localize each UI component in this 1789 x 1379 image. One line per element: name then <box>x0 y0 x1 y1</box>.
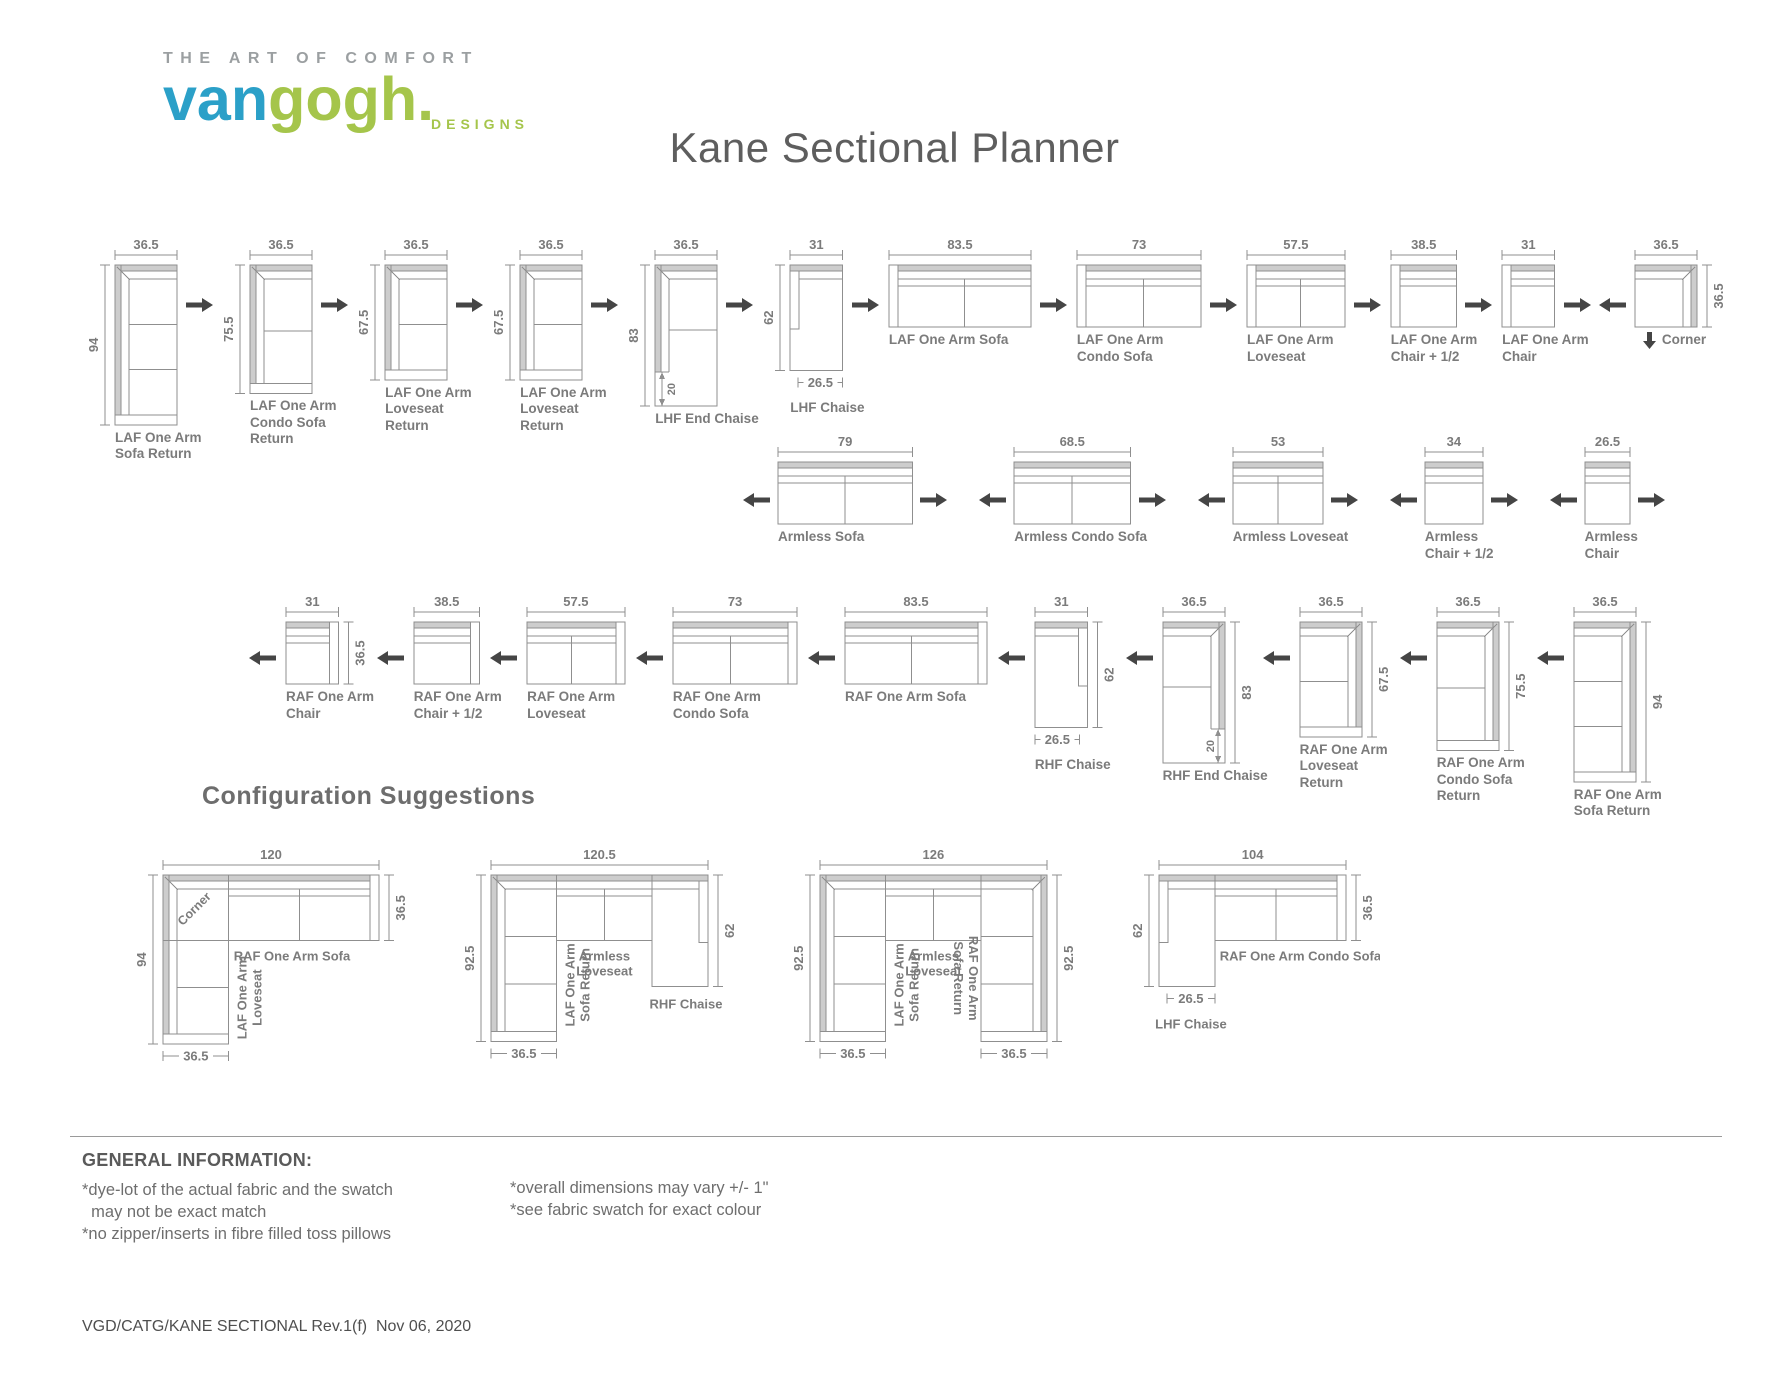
svg-text:83.5: 83.5 <box>903 594 928 609</box>
piece-raf-one-arm-sofa-return: 36.594RAF One ArmSofa Return <box>1571 592 1666 790</box>
piece-drawing-rhf-chaise: 316226.5 <box>1032 592 1118 755</box>
svg-text:73: 73 <box>728 594 742 609</box>
svg-text:Loveseat: Loveseat <box>576 964 633 979</box>
configuration-suggestions-heading: Configuration Suggestions <box>202 782 535 811</box>
svg-text:53: 53 <box>1271 434 1285 449</box>
flow-arrow-left <box>1598 297 1626 318</box>
svg-text:36.5: 36.5 <box>1360 895 1375 920</box>
flow-arrow-right <box>1210 297 1238 318</box>
flow-arrow-right <box>1040 297 1068 318</box>
svg-text:RAF One Arm Condo Sofa: RAF One Arm Condo Sofa <box>1219 949 1379 964</box>
piece-raf-one-arm-condo-sofa-return: 36.575.5RAF One ArmCondo SofaReturn <box>1434 592 1529 758</box>
piece-label-raf-one-arm-condo-sofa: RAF One ArmCondo Sofa <box>673 689 761 722</box>
flow-arrow-left <box>1125 650 1153 671</box>
piece-drawing-raf-one-arm-loveseat-return: 36.567.5 <box>1297 592 1392 740</box>
piece-drawing-raf-one-arm-sofa-return: 36.594 <box>1571 592 1666 785</box>
piece-armless-chair: 26.5ArmlessChair <box>1582 432 1633 532</box>
flow-arrow-left <box>248 650 276 671</box>
logo-brand-van: van <box>163 65 268 133</box>
piece-drawing-laf-one-arm-loveseat-return-2: 36.567.5 <box>490 235 585 383</box>
svg-text:67.5: 67.5 <box>356 310 371 335</box>
general-information-heading: GENERAL INFORMATION: <box>82 1150 312 1171</box>
svg-text:62: 62 <box>1102 667 1117 681</box>
svg-text:31: 31 <box>1054 594 1068 609</box>
row-armless-pieces: 79Armless Sofa68.5Armless Condo Sofa53Ar… <box>742 432 1666 532</box>
svg-text:94: 94 <box>86 337 101 352</box>
svg-text:57.5: 57.5 <box>1283 237 1308 252</box>
svg-text:36.5: 36.5 <box>1592 594 1617 609</box>
flow-arrow-right <box>1354 297 1382 318</box>
divider-line <box>70 1136 1722 1137</box>
svg-text:31: 31 <box>305 594 319 609</box>
svg-text:26.5: 26.5 <box>1594 434 1619 449</box>
flow-arrow-right <box>1139 492 1167 513</box>
flow-arrow-left <box>742 492 770 513</box>
vangogh-logo: THE ART OF COMFORT vangogh. DESIGNS <box>163 50 529 132</box>
config-return-loveseat-chaise-drawing: LAF One ArmSofa ReturnArmlessLoveseatRHF… <box>461 845 742 1112</box>
piece-raf-one-arm-sofa: 83.5RAF One Arm Sofa <box>842 592 990 692</box>
piece-armless-condo-sofa: 68.5Armless Condo Sofa <box>1011 432 1133 532</box>
flow-arrow-left <box>1389 492 1417 513</box>
svg-text:92.5: 92.5 <box>791 946 806 971</box>
flow-arrow-left <box>1262 650 1290 671</box>
piece-drawing-laf-one-arm-sofa: 83.5 <box>886 235 1034 330</box>
svg-text:Loveseat: Loveseat <box>250 969 265 1026</box>
svg-text:36.5: 36.5 <box>1181 594 1206 609</box>
config-chaise-condo-drawing: RAF One Arm Condo SofaLHF Chaise1046236.… <box>1129 845 1380 1053</box>
svg-text:92.5: 92.5 <box>1061 946 1076 971</box>
svg-text:36.5: 36.5 <box>1653 237 1678 252</box>
piece-rhf-chaise: 316226.5RHF Chaise <box>1032 592 1118 760</box>
piece-drawing-corner: 36.536.5 <box>1632 235 1727 330</box>
svg-text:36.5: 36.5 <box>674 237 699 252</box>
svg-text:34: 34 <box>1446 434 1461 449</box>
piece-corner: 36.536.5Corner <box>1632 235 1727 335</box>
piece-armless-sofa: 79Armless Sofa <box>775 432 915 532</box>
config-u-shape-drawing: LAF One ArmSofa ReturnArmlessLoveseatRAF… <box>790 845 1081 1112</box>
piece-raf-one-arm-chair-half: 38.5RAF One ArmChair + 1/2 <box>411 592 482 692</box>
svg-text:36.5: 36.5 <box>1711 283 1726 308</box>
svg-text:20: 20 <box>1205 740 1217 752</box>
flow-arrow-left <box>1197 492 1225 513</box>
piece-label-rhf-chaise: RHF Chaise <box>1035 757 1111 773</box>
piece-drawing-laf-one-arm-sofa-return: 36.594 <box>85 235 180 428</box>
svg-text:RAF One Arm Sofa: RAF One Arm Sofa <box>234 949 351 964</box>
piece-drawing-armless-chair-half: 34 <box>1422 432 1486 527</box>
svg-text:LAF One Arm: LAF One Arm <box>235 956 250 1039</box>
flow-arrow-left <box>635 650 663 671</box>
piece-raf-one-arm-condo-sofa: 73RAF One ArmCondo Sofa <box>670 592 800 692</box>
general-information-section: GENERAL INFORMATION: *dye-lot of the act… <box>82 1150 312 1171</box>
svg-text:36.5: 36.5 <box>1001 1046 1026 1061</box>
piece-drawing-laf-one-arm-loveseat: 57.5 <box>1244 235 1348 330</box>
info-note: *overall dimensions may vary +/- 1" <box>510 1178 930 1200</box>
piece-laf-one-arm-condo-sofa-return: 36.575.5LAF One ArmCondo SofaReturn <box>220 235 315 401</box>
piece-label-laf-one-arm-loveseat: LAF One ArmLoveseat <box>1247 332 1334 365</box>
flow-arrow-left <box>1399 650 1427 671</box>
piece-label-laf-one-arm-chair: LAF One ArmChair <box>1502 332 1589 365</box>
down-arrow-icon <box>1643 332 1656 353</box>
configuration-suggestions: CornerRAF One Arm SofaLAF One ArmLovesea… <box>133 845 1380 1119</box>
svg-text:73: 73 <box>1132 237 1146 252</box>
kane-sectional-planner-page: THE ART OF COMFORT vangogh. DESIGNS Kane… <box>0 0 1789 1379</box>
svg-text:83: 83 <box>1239 685 1254 699</box>
svg-text:126: 126 <box>922 847 944 862</box>
piece-laf-one-arm-loveseat-return-2: 36.567.5LAF One ArmLoveseatReturn <box>490 235 585 388</box>
piece-laf-one-arm-loveseat-return: 36.567.5LAF One ArmLoveseatReturn <box>355 235 450 388</box>
flow-arrow-right <box>726 297 754 318</box>
piece-drawing-lhf-chaise: 316226.5 <box>760 235 846 398</box>
svg-text:104: 104 <box>1241 847 1263 862</box>
svg-text:26.5: 26.5 <box>808 375 833 390</box>
svg-text:94: 94 <box>134 952 149 967</box>
piece-drawing-laf-one-arm-chair-half: 38.5 <box>1388 235 1459 330</box>
svg-text:31: 31 <box>1521 237 1535 252</box>
svg-text:LHF Chaise: LHF Chaise <box>1155 1017 1227 1032</box>
piece-label-laf-one-arm-condo-sofa: LAF One ArmCondo Sofa <box>1077 332 1164 365</box>
piece-drawing-armless-sofa: 79 <box>775 432 915 527</box>
piece-label-laf-one-arm-loveseat-return: LAF One ArmLoveseatReturn <box>385 385 472 434</box>
svg-text:36.5: 36.5 <box>393 895 408 920</box>
piece-drawing-laf-one-arm-loveseat-return: 36.567.5 <box>355 235 450 383</box>
piece-drawing-laf-one-arm-condo-sofa: 73 <box>1074 235 1204 330</box>
piece-drawing-raf-one-arm-condo-sofa: 73 <box>670 592 800 687</box>
flow-arrow-right <box>920 492 948 513</box>
general-information-notes-left: *dye-lot of the actual fabric and the sw… <box>82 1180 512 1246</box>
svg-text:20: 20 <box>666 383 678 395</box>
svg-text:36.5: 36.5 <box>1455 594 1480 609</box>
piece-label-raf-one-arm-condo-sofa-return: RAF One ArmCondo SofaReturn <box>1437 755 1525 804</box>
piece-laf-one-arm-chair: 31LAF One ArmChair <box>1499 235 1558 335</box>
svg-text:Sofa Return: Sofa Return <box>951 941 966 1015</box>
flow-arrow-left <box>978 492 1006 513</box>
config-u-shape: LAF One ArmSofa ReturnArmlessLoveseatRAF… <box>790 845 1081 1117</box>
svg-text:94: 94 <box>1650 694 1665 709</box>
piece-drawing-raf-one-arm-chair-half: 38.5 <box>411 592 482 687</box>
flow-arrow-left <box>489 650 517 671</box>
piece-laf-one-arm-sofa: 83.5LAF One Arm Sofa <box>886 235 1034 335</box>
piece-laf-one-arm-chair-half: 38.5LAF One ArmChair + 1/2 <box>1388 235 1459 335</box>
piece-drawing-raf-one-arm-chair: 3136.5 <box>283 592 369 687</box>
config-return-loveseat-chaise: LAF One ArmSofa ReturnArmlessLoveseatRHF… <box>461 845 742 1117</box>
svg-text:75.5: 75.5 <box>221 317 236 342</box>
config-corner-sofa-loveseat-drawing: CornerRAF One Arm SofaLAF One ArmLovesea… <box>133 845 413 1114</box>
info-note: *dye-lot of the actual fabric and the sw… <box>82 1180 512 1202</box>
svg-text:68.5: 68.5 <box>1060 434 1085 449</box>
logo-brand-gogh: gogh <box>268 65 417 133</box>
svg-text:62: 62 <box>1130 924 1145 938</box>
piece-label-armless-condo-sofa: Armless Condo Sofa <box>1014 529 1147 545</box>
piece-drawing-armless-loveseat: 53 <box>1230 432 1326 527</box>
svg-text:36.5: 36.5 <box>1318 594 1343 609</box>
piece-label-raf-one-arm-sofa-return: RAF One ArmSofa Return <box>1574 787 1662 820</box>
flow-arrow-left <box>376 650 404 671</box>
piece-drawing-raf-one-arm-loveseat: 57.5 <box>524 592 628 687</box>
piece-raf-one-arm-chair: 3136.5RAF One ArmChair <box>283 592 369 692</box>
piece-armless-loveseat: 53Armless Loveseat <box>1230 432 1326 532</box>
svg-text:31: 31 <box>809 237 823 252</box>
piece-label-armless-chair: ArmlessChair <box>1585 529 1638 562</box>
info-note: may not be exact match <box>82 1202 512 1224</box>
svg-text:36.5: 36.5 <box>183 1049 208 1064</box>
svg-text:62: 62 <box>761 310 776 324</box>
flow-arrow-left <box>807 650 835 671</box>
svg-text:38.5: 38.5 <box>1411 237 1436 252</box>
flow-arrow-left <box>1536 650 1564 671</box>
piece-drawing-raf-one-arm-condo-sofa-return: 36.575.5 <box>1434 592 1529 753</box>
svg-text:26.5: 26.5 <box>1045 732 1070 747</box>
svg-text:79: 79 <box>838 434 852 449</box>
flow-arrow-right <box>852 297 880 318</box>
piece-lhf-end-chaise: 2036.583LHF End Chaise <box>625 235 720 414</box>
svg-text:RAF One Arm: RAF One Arm <box>966 936 981 1021</box>
piece-label-armless-loveseat: Armless Loveseat <box>1233 529 1349 545</box>
svg-text:92.5: 92.5 <box>462 946 477 971</box>
config-corner-sofa-loveseat: CornerRAF One Arm SofaLAF One ArmLovesea… <box>133 845 413 1119</box>
config-chaise-condo: RAF One Arm Condo SofaLHF Chaise1046236.… <box>1129 845 1380 1058</box>
piece-drawing-lhf-end-chaise: 2036.583 <box>625 235 720 409</box>
piece-label-laf-one-arm-sofa: LAF One Arm Sofa <box>889 332 1009 348</box>
svg-text:LAF One Arm: LAF One Arm <box>563 943 578 1026</box>
piece-drawing-armless-chair: 26.5 <box>1582 432 1633 527</box>
piece-label-raf-one-arm-loveseat-return: RAF One ArmLoveseatReturn <box>1300 742 1388 791</box>
piece-label-armless-sofa: Armless Sofa <box>778 529 864 545</box>
svg-text:75.5: 75.5 <box>1513 674 1528 699</box>
piece-lhf-chaise: 316226.5LHF Chaise <box>760 235 846 403</box>
piece-raf-one-arm-loveseat: 57.5RAF One ArmLoveseat <box>524 592 628 692</box>
piece-label-raf-one-arm-loveseat: RAF One ArmLoveseat <box>527 689 615 722</box>
svg-text:67.5: 67.5 <box>491 310 506 335</box>
svg-text:36.5: 36.5 <box>403 237 428 252</box>
flow-arrow-right <box>1331 492 1359 513</box>
info-note: *no zipper/inserts in fibre filled toss … <box>82 1224 512 1246</box>
piece-raf-one-arm-loveseat-return: 36.567.5RAF One ArmLoveseatReturn <box>1297 592 1392 745</box>
piece-label-laf-one-arm-loveseat-return-2: LAF One ArmLoveseatReturn <box>520 385 607 434</box>
svg-text:38.5: 38.5 <box>434 594 459 609</box>
piece-drawing-rhf-end-chaise: 2036.583 <box>1160 592 1255 766</box>
flow-arrow-right <box>321 297 349 318</box>
flow-arrow-right <box>591 297 619 318</box>
piece-drawing-armless-condo-sofa: 68.5 <box>1011 432 1133 527</box>
piece-drawing-raf-one-arm-sofa: 83.5 <box>842 592 990 687</box>
piece-label-laf-one-arm-sofa-return: LAF One ArmSofa Return <box>115 430 202 463</box>
piece-rhf-end-chaise: 2036.583RHF End Chaise <box>1160 592 1255 771</box>
svg-text:36.5: 36.5 <box>539 237 564 252</box>
piece-label-raf-one-arm-chair: RAF One ArmChair <box>286 689 374 722</box>
svg-text:83: 83 <box>626 328 641 342</box>
svg-text:120.5: 120.5 <box>583 847 616 862</box>
piece-label-lhf-end-chaise: LHF End Chaise <box>655 411 759 427</box>
svg-text:36.5: 36.5 <box>840 1046 865 1061</box>
svg-text:36.5: 36.5 <box>268 237 293 252</box>
piece-label-rhf-end-chaise: RHF End Chaise <box>1163 768 1268 784</box>
flow-arrow-right <box>456 297 484 318</box>
svg-text:Corner: Corner <box>175 889 214 928</box>
svg-text:Armless: Armless <box>579 949 630 964</box>
svg-text:LAF One Arm: LAF One Arm <box>892 943 907 1026</box>
piece-label-raf-one-arm-chair-half: RAF One ArmChair + 1/2 <box>414 689 502 722</box>
general-information-notes-right: *overall dimensions may vary +/- 1"*see … <box>510 1178 930 1222</box>
flow-arrow-right <box>1465 297 1493 318</box>
flow-arrow-right <box>186 297 214 318</box>
piece-laf-one-arm-sofa-return: 36.594LAF One ArmSofa Return <box>85 235 180 433</box>
svg-text:67.5: 67.5 <box>1376 667 1391 692</box>
row-raf-pieces: 3136.5RAF One ArmChair38.5RAF One ArmCha… <box>248 592 1666 790</box>
info-note: *see fabric swatch for exact colour <box>510 1200 930 1222</box>
flow-arrow-left <box>997 650 1025 671</box>
piece-laf-one-arm-condo-sofa: 73LAF One ArmCondo Sofa <box>1074 235 1204 335</box>
svg-text:36.5: 36.5 <box>511 1046 536 1061</box>
footer-revision-text: VGD/CATG/KANE SECTIONAL Rev.1(f) Nov 06,… <box>82 1318 471 1336</box>
row-laf-pieces: 36.594LAF One ArmSofa Return36.575.5LAF … <box>85 235 1727 433</box>
flow-arrow-right <box>1491 492 1519 513</box>
piece-label-laf-one-arm-chair-half: LAF One ArmChair + 1/2 <box>1391 332 1478 365</box>
piece-label-raf-one-arm-sofa: RAF One Arm Sofa <box>845 689 966 705</box>
flow-arrow-left <box>1549 492 1577 513</box>
piece-laf-one-arm-loveseat: 57.5LAF One ArmLoveseat <box>1244 235 1348 335</box>
svg-text:36.5: 36.5 <box>133 237 158 252</box>
page-title: Kane Sectional Planner <box>0 124 1789 172</box>
piece-armless-chair-half: 34ArmlessChair + 1/2 <box>1422 432 1486 532</box>
piece-label-armless-chair-half: ArmlessChair + 1/2 <box>1425 529 1494 562</box>
flow-arrow-right <box>1638 492 1666 513</box>
svg-text:26.5: 26.5 <box>1178 991 1203 1006</box>
svg-text:62: 62 <box>722 924 737 938</box>
svg-text:120: 120 <box>260 847 282 862</box>
piece-label-corner: Corner <box>1643 332 1706 353</box>
piece-drawing-laf-one-arm-condo-sofa-return: 36.575.5 <box>220 235 315 396</box>
flow-arrow-right <box>1564 297 1592 318</box>
svg-text:57.5: 57.5 <box>563 594 588 609</box>
piece-label-laf-one-arm-condo-sofa-return: LAF One ArmCondo SofaReturn <box>250 398 337 447</box>
svg-text:83.5: 83.5 <box>947 237 972 252</box>
svg-text:36.5: 36.5 <box>353 640 368 665</box>
piece-drawing-laf-one-arm-chair: 31 <box>1499 235 1558 330</box>
svg-text:RHF Chaise: RHF Chaise <box>650 997 723 1012</box>
piece-label-lhf-chaise: LHF Chaise <box>790 400 864 416</box>
